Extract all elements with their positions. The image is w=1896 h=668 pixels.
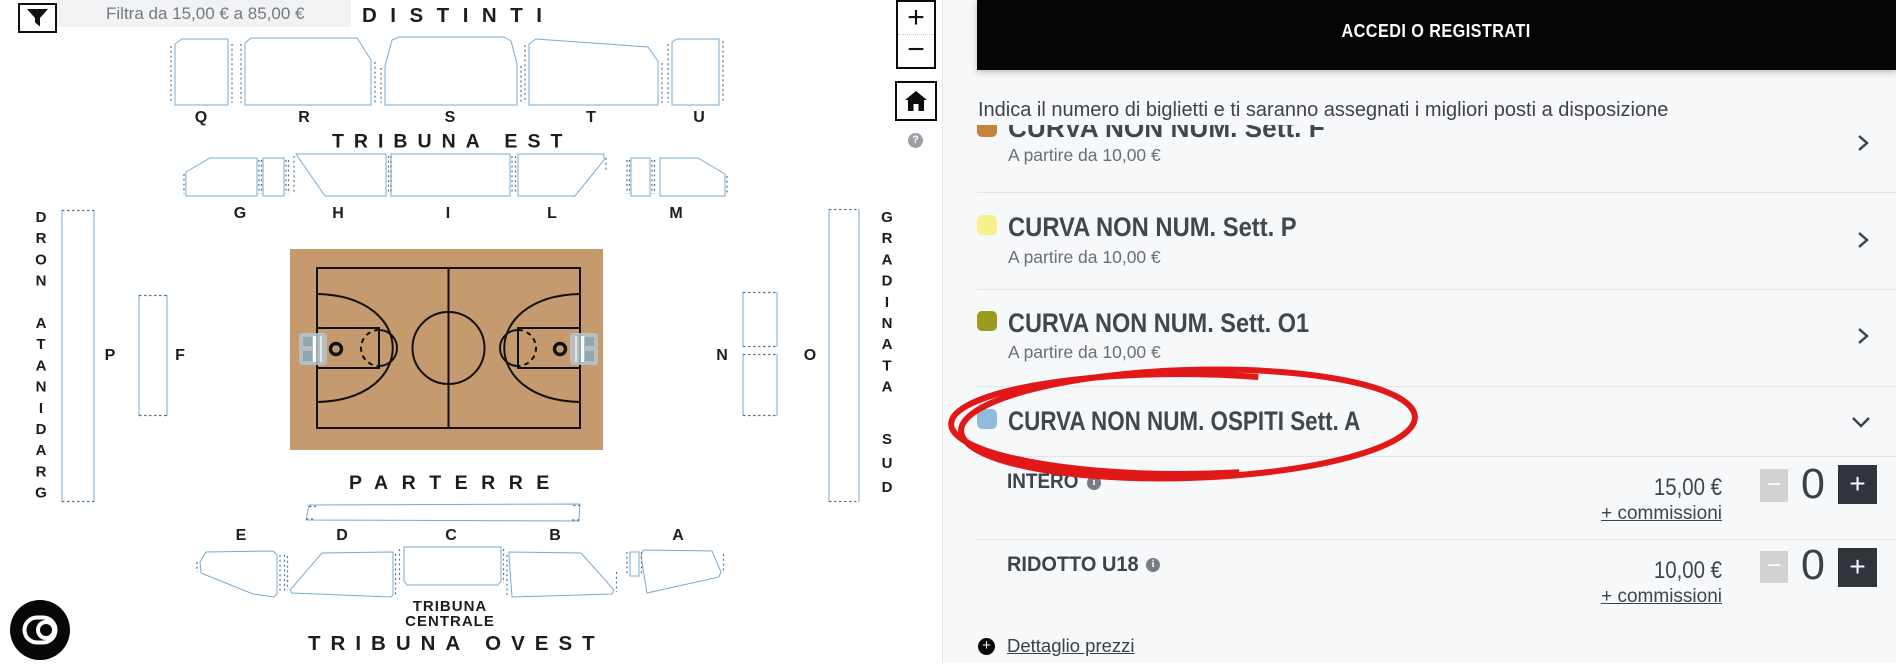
svg-text:T: T <box>36 336 45 353</box>
svg-text:G: G <box>881 209 893 226</box>
svg-text:C: C <box>445 527 457 544</box>
svg-text:N: N <box>716 347 728 364</box>
svg-text:U: U <box>693 109 705 126</box>
svg-text:S: S <box>882 431 892 448</box>
svg-text:P: P <box>105 347 116 364</box>
svg-text:I: I <box>39 400 43 417</box>
svg-text:R: R <box>882 230 893 247</box>
svg-text:G: G <box>234 205 246 222</box>
svg-text:R: R <box>36 463 47 480</box>
svg-text:D: D <box>882 479 893 496</box>
svg-text:N: N <box>882 315 893 332</box>
svg-text:CENTRALE: CENTRALE <box>405 613 495 630</box>
svg-text:D: D <box>36 421 47 438</box>
svg-text:D: D <box>336 527 348 544</box>
svg-text:A: A <box>882 379 893 396</box>
svg-text:F: F <box>175 347 185 364</box>
svg-text:R: R <box>298 109 310 126</box>
svg-text:PARTERRE: PARTERRE <box>349 472 563 494</box>
svg-text:TRIBUNA EST: TRIBUNA EST <box>332 131 572 153</box>
svg-text:M: M <box>669 205 682 222</box>
svg-text:U: U <box>882 455 893 472</box>
svg-text:N: N <box>36 273 47 290</box>
svg-text:N: N <box>36 379 47 396</box>
svg-text:G: G <box>35 485 47 502</box>
svg-text:I: I <box>446 205 450 222</box>
svg-text:O: O <box>35 251 47 268</box>
svg-text:Q: Q <box>195 109 207 126</box>
svg-text:D: D <box>36 209 47 226</box>
svg-text:B: B <box>549 527 561 544</box>
svg-text:A: A <box>672 527 684 544</box>
svg-text:A: A <box>882 251 893 268</box>
svg-text:A: A <box>882 336 893 353</box>
svg-text:D: D <box>882 273 893 290</box>
svg-text:TRIBUNA OVEST: TRIBUNA OVEST <box>308 632 605 655</box>
svg-text:A: A <box>36 315 47 332</box>
svg-text:H: H <box>332 205 344 222</box>
svg-text:T: T <box>586 109 596 126</box>
svg-text:R: R <box>36 230 47 247</box>
svg-text:I: I <box>885 294 889 311</box>
svg-text:E: E <box>236 527 247 544</box>
svg-text:S: S <box>445 109 456 126</box>
svg-text:T: T <box>882 357 891 374</box>
svg-text:A: A <box>36 357 47 374</box>
svg-text:O: O <box>804 347 816 364</box>
svg-text:L: L <box>547 205 557 222</box>
svg-text:A: A <box>36 442 47 459</box>
